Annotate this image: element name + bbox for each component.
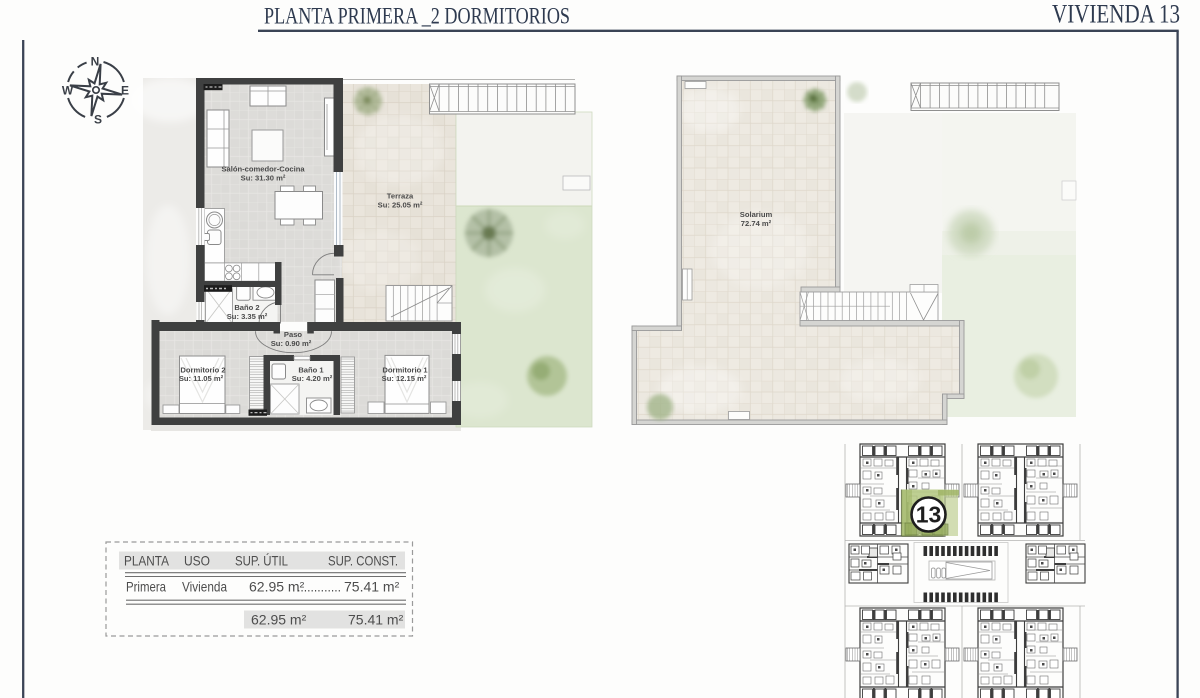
svg-text:PLANTA: PLANTA [124, 553, 170, 569]
svg-text:PLANTA PRIMERA _2 DORMITORIOS: PLANTA PRIMERA _2 DORMITORIOS [264, 4, 570, 29]
svg-text:Su: 31.30 m²: Su: 31.30 m² [241, 173, 286, 182]
svg-text:75.41 m²: 75.41 m² [348, 612, 404, 628]
svg-text:Vivienda: Vivienda [182, 579, 227, 595]
svg-text:Su: 3.35 m²: Su: 3.35 m² [227, 312, 268, 321]
svg-text:Dormitorio 2: Dormitorio 2 [180, 365, 225, 374]
svg-text:75.41 m²: 75.41 m² [344, 579, 400, 595]
svg-text:Su: 11.05 m²: Su: 11.05 m² [179, 374, 224, 383]
svg-text:Su: 25.05 m²: Su: 25.05 m² [378, 200, 423, 209]
svg-text:W: W [62, 84, 74, 98]
svg-text:Dormitorio 1: Dormitorio 1 [382, 365, 428, 374]
svg-text:Su: 0.90 m²: Su: 0.90 m² [271, 339, 312, 348]
svg-text:Terraza: Terraza [387, 192, 414, 201]
svg-text:VIVIENDA 13: VIVIENDA 13 [1052, 0, 1180, 29]
svg-text:USO: USO [184, 553, 210, 569]
svg-text:N: N [91, 55, 100, 69]
svg-text:Su: 4.20 m²: Su: 4.20 m² [292, 374, 333, 383]
svg-text:Paso: Paso [284, 330, 303, 339]
svg-text:SUP. CONST.: SUP. CONST. [328, 553, 398, 569]
svg-text:Baño 1: Baño 1 [298, 365, 324, 374]
svg-text:SUP. ÚTIL: SUP. ÚTIL [235, 553, 288, 569]
svg-text:72.74 m²: 72.74 m² [741, 219, 772, 228]
svg-text:13: 13 [916, 502, 942, 528]
svg-text:Baño 2: Baño 2 [234, 303, 259, 312]
svg-text:.............: ............. [297, 579, 341, 595]
svg-text:62.95 m²: 62.95 m² [251, 612, 307, 628]
svg-text:Salón-comedor-Cocina: Salón-comedor-Cocina [221, 165, 305, 174]
svg-text:Su: 12.15 m²: Su: 12.15 m² [382, 374, 427, 383]
svg-text:E: E [121, 84, 129, 98]
svg-text:Primera: Primera [126, 579, 166, 595]
svg-text:Solarium: Solarium [740, 210, 773, 219]
svg-text:S: S [94, 113, 102, 127]
